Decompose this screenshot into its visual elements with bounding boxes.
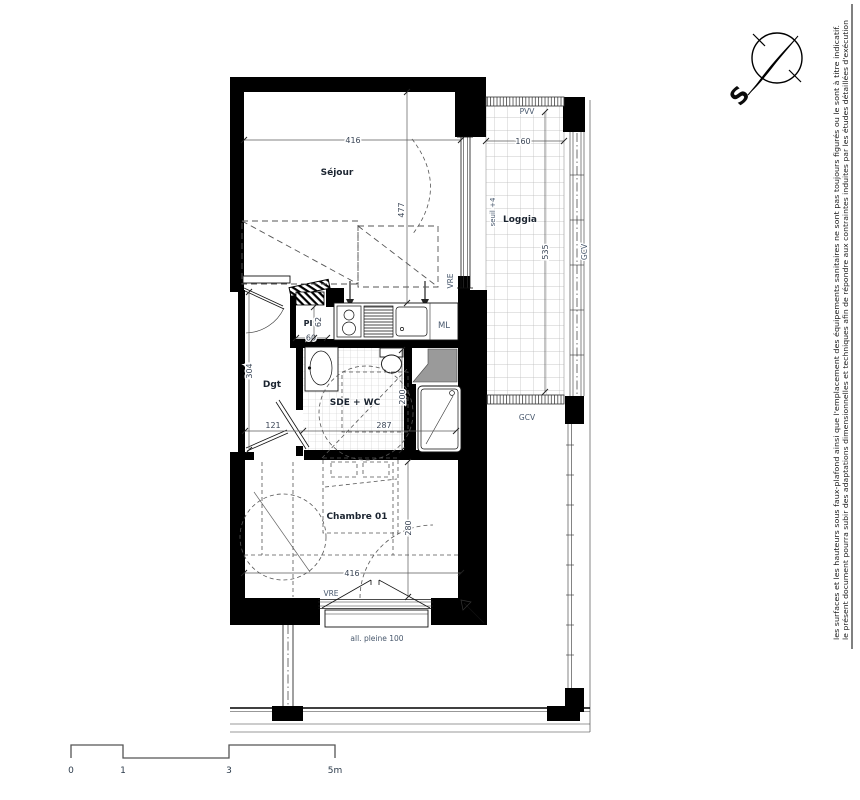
- label-vre-window: VRE: [323, 589, 338, 598]
- technical-shaft: [413, 349, 457, 382]
- label-ml: ML: [438, 321, 450, 331]
- disclaimer-line2: les surfaces et les hauteurs sous faux-p…: [832, 25, 841, 640]
- label-seuil: seuil +4: [489, 197, 497, 226]
- label-allege: all. pleine 100: [350, 634, 403, 643]
- dim-loggia-width: 160: [515, 137, 530, 146]
- wc-bowl: [382, 355, 402, 373]
- pi-shelf: [296, 292, 324, 305]
- floor-plan: 416 477 160 535 304 121 287 200 60 62 28…: [0, 0, 860, 800]
- pillow: [331, 462, 357, 477]
- compass: S: [725, 33, 802, 111]
- scale-5m: 5m: [328, 766, 343, 776]
- railing-ticks-lower: [566, 445, 574, 655]
- dim-sejour-depth: 477: [397, 202, 406, 217]
- room-label-sejour: Séjour: [321, 167, 354, 178]
- room-label-sde: SDE + WC: [330, 398, 381, 408]
- bathroom-door-leaf: [246, 430, 288, 451]
- label-pvv: PVV: [520, 107, 536, 116]
- sejour-door-leaf: [244, 288, 284, 333]
- dim-loggia-depth: 535: [541, 244, 550, 259]
- pillow: [363, 462, 389, 477]
- scale-1: 1: [120, 766, 126, 776]
- dim-sde-width: 287: [376, 421, 391, 430]
- label-vre-bay: VRE: [446, 273, 455, 288]
- room-label-chambre: Chambre 01: [326, 512, 387, 522]
- compass-south-label: S: [725, 81, 755, 111]
- turning-circle: [240, 494, 326, 580]
- dim-pi-depth: 62: [314, 317, 323, 327]
- scale-0: 0: [68, 766, 74, 776]
- dim-dgt-depth: 304: [245, 363, 254, 378]
- loggia-tiling: [486, 106, 564, 395]
- scale-3: 3: [226, 766, 232, 776]
- vre-bay-window: [412, 137, 473, 288]
- room-label-dgt: Dgt: [263, 380, 282, 390]
- drainboard: [364, 306, 393, 337]
- partition-stub: [243, 276, 290, 283]
- compass-needle-icon: [751, 36, 798, 92]
- window-sill: [325, 610, 428, 627]
- vre-bedroom-window: [318, 525, 433, 627]
- shower-tray: [418, 386, 461, 452]
- disclaimer-line1: le présent document pourra subir des ada…: [841, 20, 850, 640]
- label-gcv-rail: GCV: [580, 243, 589, 260]
- dim-chambre-depth: 280: [404, 520, 413, 535]
- disclaimer: le présent document pourra subir des ada…: [832, 4, 852, 649]
- room-label-loggia: Loggia: [503, 215, 537, 225]
- pvv-window: [486, 97, 564, 106]
- label-gcv-loggia: GCV: [519, 413, 536, 422]
- dim-sde-depth: 200: [398, 389, 407, 404]
- dim-chambre-width: 416: [344, 569, 359, 578]
- gcv-glass-rail: [487, 395, 564, 404]
- dim-sejour-width: 416: [345, 136, 360, 145]
- room-label-pi: PI: [304, 319, 313, 328]
- scale-bar: 0 1 3 5m: [68, 745, 342, 776]
- dim-dgt-width: 121: [265, 421, 280, 430]
